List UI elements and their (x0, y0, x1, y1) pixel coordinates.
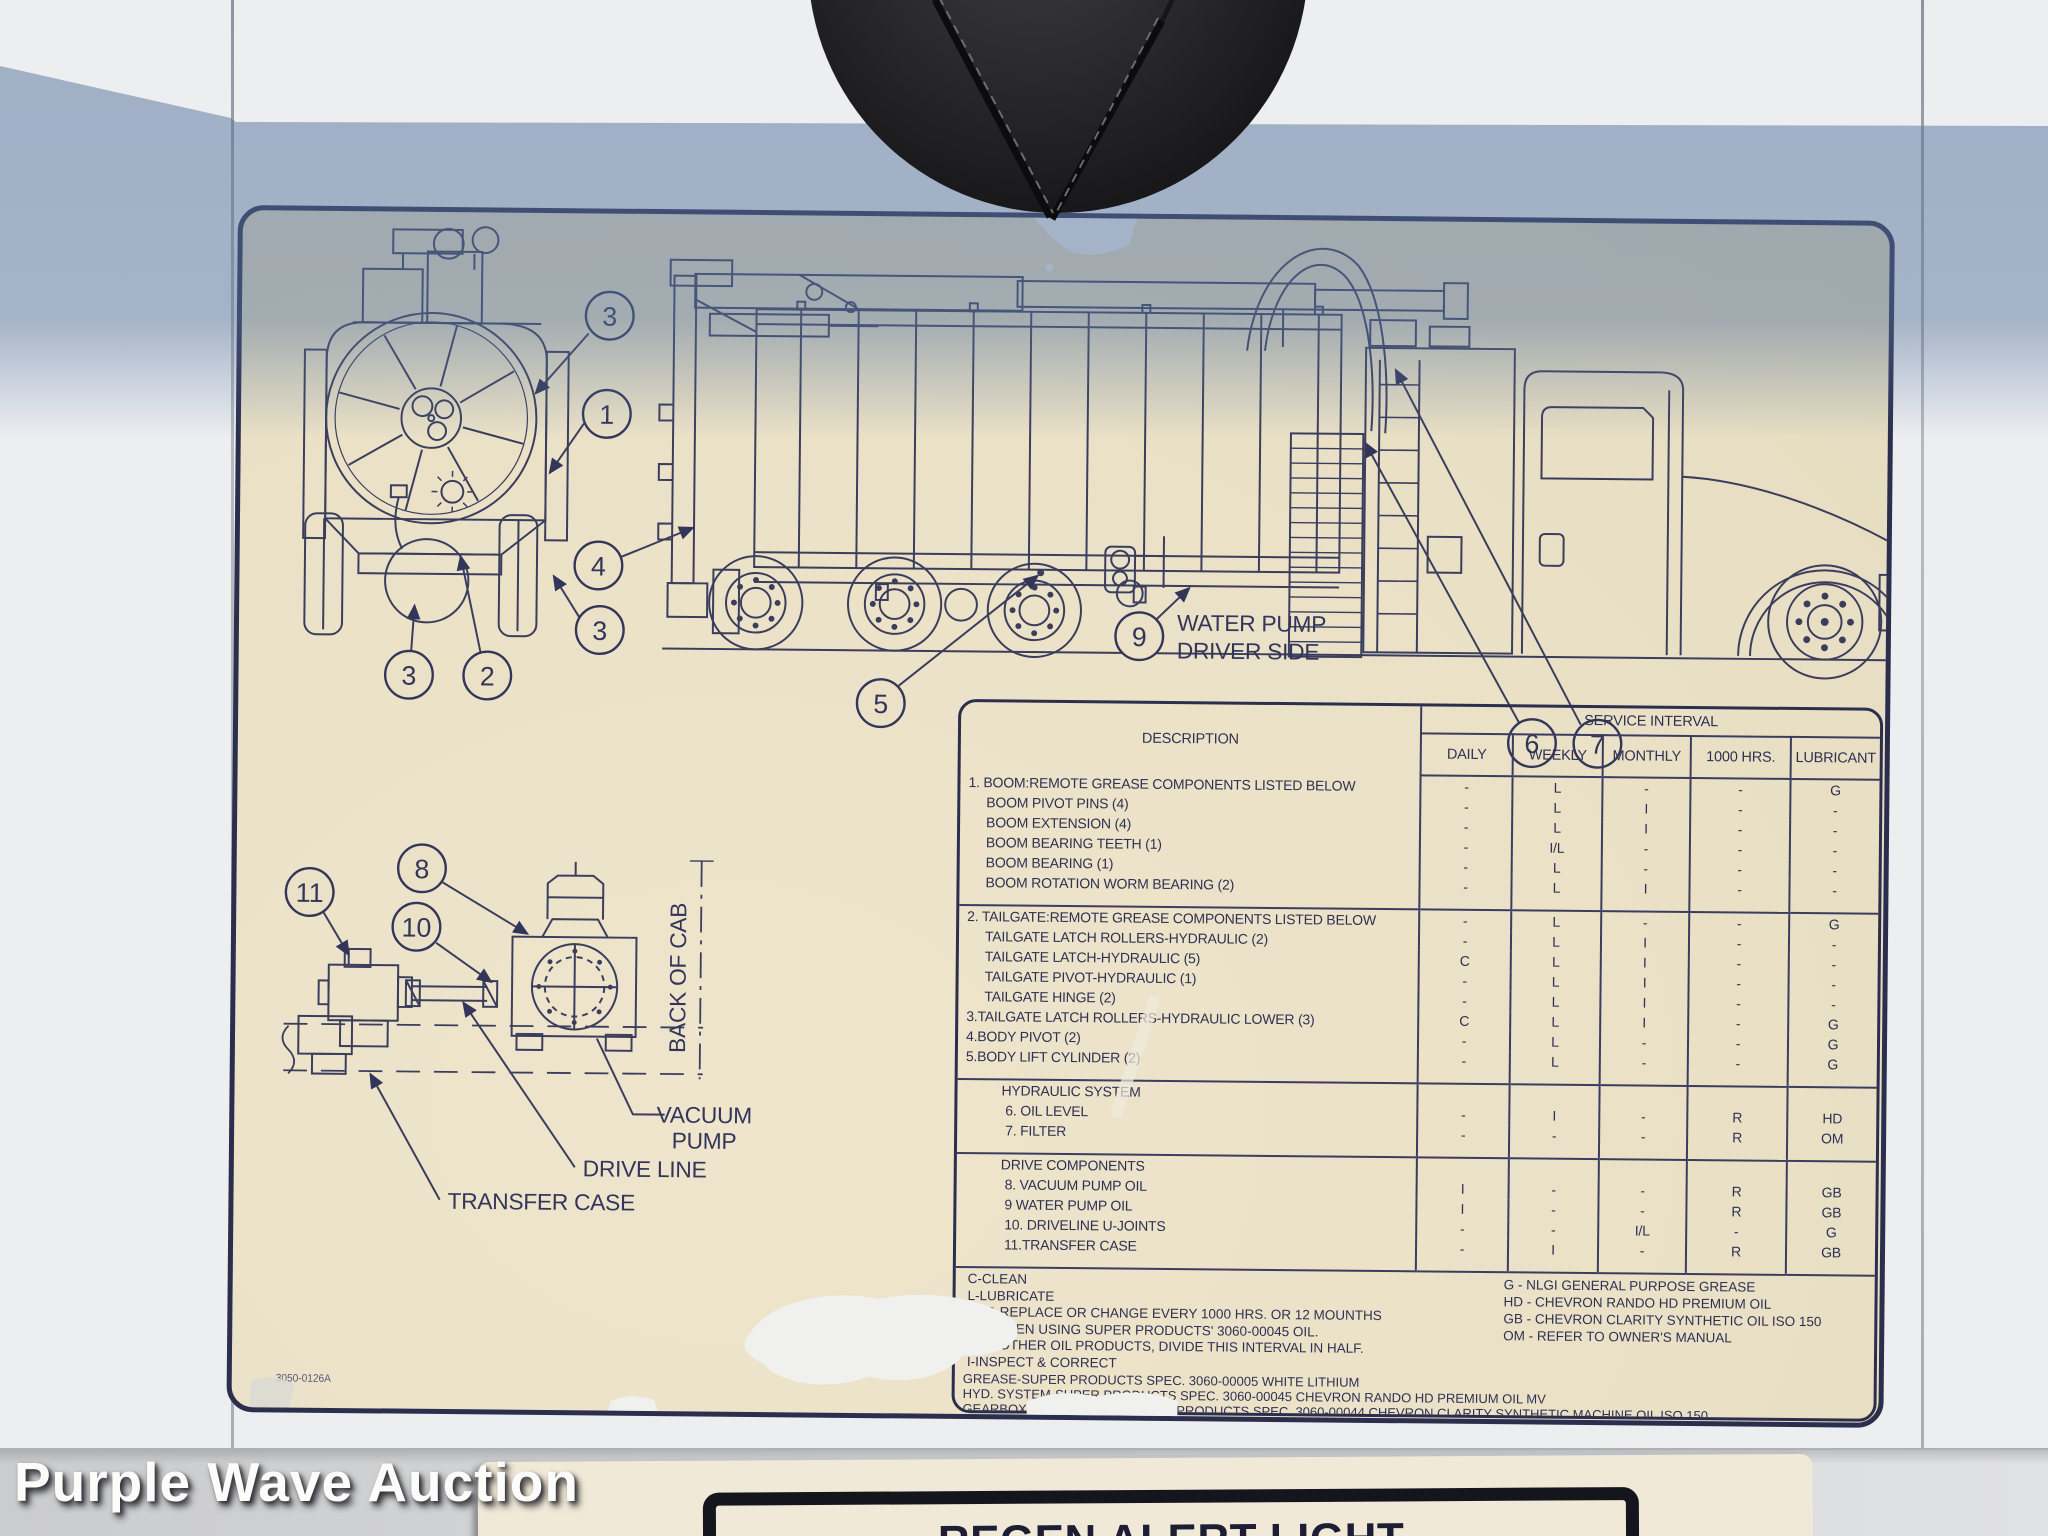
mark-lubricant: - (1790, 820, 1879, 841)
mark-daily: - (1416, 1238, 1508, 1272)
mark-monthly: - (1602, 838, 1690, 859)
water-pump-label-line2: DRIVER SIDE (1177, 637, 1320, 664)
lubrication-decal: 3 1 4 3 3 2 5 9 6 7 11 8 10 WATER PUMP D… (226, 205, 1895, 1428)
mark-daily: - (1419, 909, 1511, 931)
mark-daily: I (1417, 1178, 1509, 1199)
mark-1000hrs: - (1686, 1221, 1786, 1242)
mark-daily: I (1416, 1198, 1508, 1219)
callout-8: 8 (414, 854, 429, 884)
callout-4: 4 (591, 551, 606, 581)
mark-weekly: L (1510, 1011, 1600, 1032)
mark-lubricant: - (1790, 840, 1879, 861)
mark-lubricant: - (1789, 954, 1878, 975)
mark-1000hrs: - (1689, 933, 1789, 954)
mark-daily: - (1417, 1124, 1509, 1158)
callout-1: 1 (599, 400, 614, 430)
mark-daily: C (1419, 950, 1511, 971)
mark-weekly: I/L (1512, 837, 1602, 858)
mark-monthly: I (1600, 1012, 1688, 1033)
mark-daily: - (1419, 970, 1511, 991)
row-description: 11.TRANSFER CASE (956, 1234, 1416, 1271)
mark-lubricant: - (1790, 800, 1879, 821)
mark-daily: - (1418, 1030, 1510, 1051)
mark-1000hrs: R (1687, 1181, 1787, 1202)
mark-daily: - (1418, 1050, 1510, 1084)
mark-lubricant (1787, 1087, 1876, 1109)
callout-9: 9 (1132, 622, 1147, 652)
water-pump-label-line1: WATER PUMP (1177, 610, 1326, 637)
callout-3a: 3 (602, 302, 617, 332)
transfer-case-label: TRANSFER CASE (447, 1188, 635, 1216)
back-of-cab-label: BACK OF CAB (664, 903, 691, 1053)
mark-1000hrs: R (1686, 1241, 1786, 1275)
col-header-lubricant: LUBRICANT (1791, 737, 1880, 780)
mark-monthly: I (1601, 878, 1689, 912)
mark-daily: - (1418, 990, 1510, 1011)
mark-daily (1417, 1083, 1509, 1105)
round-knob (795, 0, 1325, 235)
col-header-1000hrs: 1000 HRS. (1691, 736, 1791, 779)
mark-daily: - (1420, 796, 1512, 817)
mark-1000hrs: - (1690, 778, 1790, 800)
mark-1000hrs: - (1690, 839, 1790, 860)
mark-lubricant: G (1790, 779, 1879, 801)
mark-lubricant: - (1789, 880, 1878, 914)
mark-monthly: - (1599, 1106, 1687, 1127)
mark-monthly (1599, 1159, 1687, 1181)
mark-daily: - (1420, 775, 1512, 797)
mark-1000hrs (1687, 1160, 1787, 1182)
rear-view-drawing (302, 226, 570, 637)
mark-monthly: I (1601, 932, 1689, 953)
mark-lubricant: G (1786, 1222, 1875, 1243)
mark-1000hrs: - (1688, 1053, 1788, 1087)
regen-alert-title: REGEN ALERT LIGHT (716, 1513, 1626, 1536)
callout-5: 5 (873, 689, 888, 719)
mark-monthly: - (1598, 1240, 1686, 1274)
mark-lubricant: - (1789, 934, 1878, 955)
mark-1000hrs (1687, 1086, 1787, 1108)
mark-1000hrs: - (1690, 859, 1790, 880)
mark-weekly: L (1512, 857, 1602, 878)
photo-background: REGEN ALERT LIGHT (0, 0, 2048, 1536)
mark-weekly: L (1511, 877, 1601, 911)
mark-weekly: L (1510, 991, 1600, 1012)
mark-daily: - (1420, 816, 1512, 837)
mark-weekly: - (1509, 1125, 1599, 1159)
callout-3b: 3 (592, 616, 607, 646)
mark-1000hrs: - (1688, 993, 1788, 1014)
mark-weekly (1509, 1084, 1599, 1106)
mark-lubricant: OM (1787, 1128, 1876, 1162)
service-interval-table: DESCRIPTION SERVICE INTERVAL DAILY WEEKL… (951, 699, 1883, 1422)
vacuum-pump-label-line1: VACUUM (656, 1101, 752, 1128)
col-header-description: DESCRIPTION (961, 702, 1422, 775)
mark-1000hrs: R (1687, 1127, 1787, 1161)
mark-monthly: I (1601, 952, 1689, 973)
mark-monthly: I (1600, 992, 1688, 1013)
drive-components-drawing (282, 857, 713, 1079)
mark-monthly: - (1599, 1180, 1687, 1201)
mark-monthly: - (1598, 1200, 1686, 1221)
callout-10: 10 (401, 913, 431, 943)
mark-1000hrs: - (1689, 879, 1789, 913)
col-header-daily: DAILY (1421, 733, 1513, 776)
row-description: 7. FILTER (957, 1120, 1417, 1157)
mark-1000hrs: - (1689, 953, 1789, 974)
mark-1000hrs: - (1689, 912, 1789, 934)
mark-lubricant: GB (1786, 1242, 1875, 1276)
mark-lubricant: G (1788, 1054, 1877, 1088)
vacuum-pump-label-line2: PUMP (672, 1127, 737, 1154)
mark-lubricant: HD (1787, 1108, 1876, 1129)
mark-1000hrs: - (1688, 1013, 1788, 1034)
mark-weekly: L (1511, 931, 1601, 952)
mark-1000hrs: - (1690, 799, 1790, 820)
mark-daily: - (1416, 1218, 1508, 1239)
row-description: 5.BODY LIFT CYLINDER (2) (958, 1046, 1418, 1083)
mark-monthly: - (1600, 1052, 1688, 1086)
mark-monthly: - (1601, 911, 1689, 933)
mark-weekly: I (1508, 1239, 1598, 1273)
regen-alert-border: REGEN ALERT LIGHT (703, 1487, 1640, 1536)
col-header-monthly: MONTHLY (1603, 735, 1691, 778)
mark-monthly: - (1599, 1126, 1687, 1160)
mark-lubricant: G (1788, 1014, 1877, 1035)
mark-weekly: L (1510, 1031, 1600, 1052)
mark-weekly: I (1509, 1105, 1599, 1126)
mark-lubricant (1787, 1161, 1876, 1183)
mark-daily: C (1418, 1010, 1510, 1031)
decal-part-number: 3050-0126A (276, 1372, 331, 1385)
mark-weekly: - (1508, 1199, 1598, 1220)
row-description: BOOM ROTATION WORM BEARING (2) (959, 872, 1419, 909)
mark-weekly: L (1511, 971, 1601, 992)
lubricant-legend: G - NLGI GENERAL PURPOSE GREASEHD - CHEV… (1503, 1276, 1822, 1347)
mark-lubricant: - (1788, 994, 1877, 1015)
mark-weekly: L (1511, 910, 1601, 932)
mark-monthly: I (1601, 972, 1689, 993)
mark-weekly: - (1509, 1179, 1599, 1200)
mark-1000hrs: R (1687, 1107, 1787, 1128)
mark-monthly: I (1602, 818, 1690, 839)
mark-1000hrs: - (1689, 973, 1789, 994)
mark-lubricant: GB (1787, 1182, 1876, 1203)
mark-lubricant: - (1788, 974, 1877, 995)
mark-weekly: - (1508, 1219, 1598, 1240)
mark-weekly (1509, 1158, 1599, 1180)
mark-1000hrs: - (1690, 819, 1790, 840)
mark-daily: - (1420, 836, 1512, 857)
mark-daily: - (1420, 856, 1512, 877)
table-notes: C-CLEANL-LUBRICATER-REPLACE OR CHANGE EV… (954, 1268, 1874, 1422)
mark-daily: - (1417, 1104, 1509, 1125)
mark-weekly: L (1512, 797, 1602, 818)
mark-monthly: - (1602, 777, 1690, 799)
watermark: Purple Wave Auction (14, 1450, 579, 1514)
col-header-weekly: WEEKLY (1513, 734, 1603, 777)
legend-line: OM - REFER TO OWNER'S MANUAL (1503, 1327, 1821, 1347)
callout-3c: 3 (401, 661, 416, 691)
mark-weekly: L (1511, 951, 1601, 972)
mark-monthly: - (1602, 858, 1690, 879)
mark-weekly: L (1512, 776, 1602, 798)
panel-seam-right (1921, 0, 1924, 1536)
mark-lubricant: - (1790, 860, 1879, 881)
callout-2: 2 (480, 661, 495, 691)
mark-monthly: - (1600, 1032, 1688, 1053)
mark-monthly (1599, 1085, 1687, 1107)
mark-weekly: L (1510, 1051, 1600, 1085)
callout-11: 11 (296, 878, 324, 908)
mark-daily (1417, 1157, 1509, 1179)
mark-monthly: I (1602, 798, 1690, 819)
mark-lubricant: G (1789, 913, 1878, 935)
mark-weekly: L (1512, 817, 1602, 838)
mark-1000hrs: - (1688, 1033, 1788, 1054)
mark-lubricant: GB (1786, 1202, 1875, 1223)
mark-daily: - (1419, 876, 1511, 910)
mark-monthly: I/L (1598, 1220, 1686, 1241)
notes-key: C-CLEANL-LUBRICATER-REPLACE OR CHANGE EV… (967, 1271, 1382, 1374)
mark-1000hrs: R (1686, 1201, 1786, 1222)
mark-daily: - (1419, 930, 1511, 951)
drive-line-label: DRIVE LINE (583, 1155, 707, 1182)
regen-alert-decal: REGEN ALERT LIGHT (478, 1454, 1814, 1536)
mark-lubricant: G (1788, 1034, 1877, 1055)
